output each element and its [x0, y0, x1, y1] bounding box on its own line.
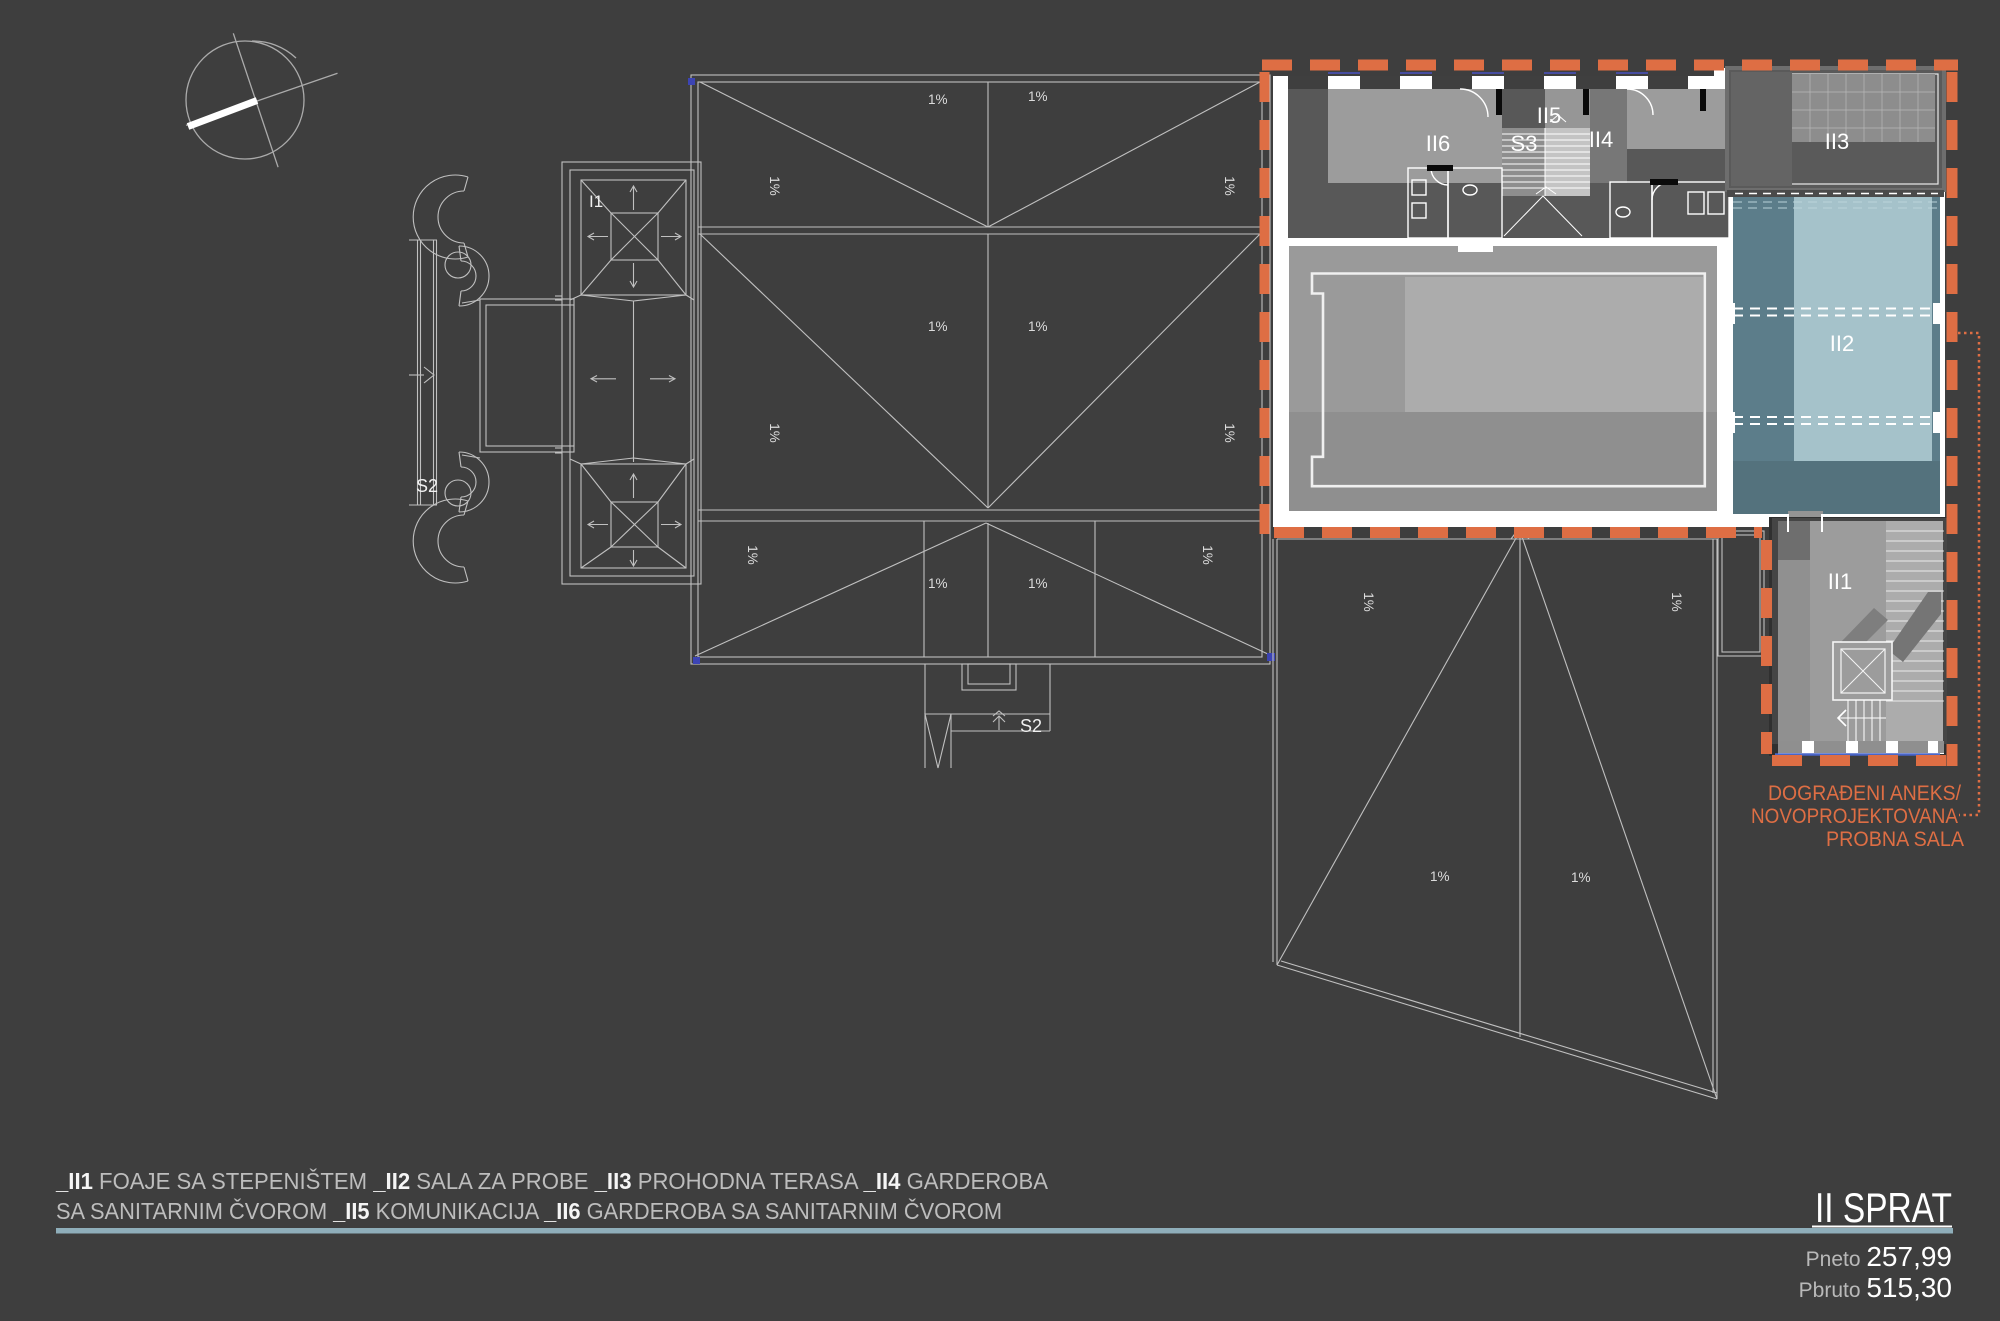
svg-text:1%: 1%	[1028, 319, 1048, 334]
svg-text:SA SANITARNIM ČVOROM _II5 KOMU: SA SANITARNIM ČVOROM _II5 KOMUNIKACIJA _…	[56, 1197, 1002, 1224]
svg-text:PROBNA SALA: PROBNA SALA	[1826, 828, 1964, 851]
svg-text:1%: 1%	[1028, 576, 1048, 591]
svg-text:1%: 1%	[1200, 545, 1215, 565]
svg-text:NOVOPROJEKTOVANA: NOVOPROJEKTOVANA	[1751, 805, 1958, 828]
svg-text:1%: 1%	[928, 576, 948, 591]
svg-text:1%: 1%	[767, 423, 782, 443]
svg-text:1%: 1%	[745, 545, 760, 565]
svg-text:II2: II2	[1830, 331, 1854, 356]
svg-text:I1: I1	[589, 192, 603, 211]
svg-text:DOGRAĐENI ANEKS/: DOGRAĐENI ANEKS/	[1768, 782, 1961, 805]
svg-text:1%: 1%	[1028, 89, 1048, 104]
svg-text:1%: 1%	[767, 176, 782, 196]
svg-text:S2: S2	[416, 476, 438, 496]
svg-text:II4: II4	[1589, 127, 1613, 152]
svg-text:S2: S2	[1020, 716, 1042, 736]
svg-text:1%: 1%	[928, 319, 948, 334]
svg-text:1%: 1%	[1571, 870, 1591, 885]
svg-text:S3: S3	[1511, 131, 1538, 156]
svg-text:_II1 FOAJE SA STEPENIŠTEM _II2: _II1 FOAJE SA STEPENIŠTEM _II2 SALA ZA P…	[55, 1167, 1049, 1194]
svg-text:II1: II1	[1828, 569, 1852, 594]
svg-text:1%: 1%	[1669, 592, 1684, 612]
svg-text:1%: 1%	[1361, 592, 1376, 612]
svg-text:II5: II5	[1537, 103, 1561, 128]
svg-text:1%: 1%	[1430, 869, 1450, 884]
svg-text:II SPRAT: II SPRAT	[1815, 1184, 1952, 1231]
svg-text:1%: 1%	[1222, 176, 1237, 196]
svg-text:1%: 1%	[928, 92, 948, 107]
svg-text:II6: II6	[1426, 131, 1450, 156]
svg-text:II3: II3	[1825, 129, 1849, 154]
svg-text:1%: 1%	[1222, 423, 1237, 443]
